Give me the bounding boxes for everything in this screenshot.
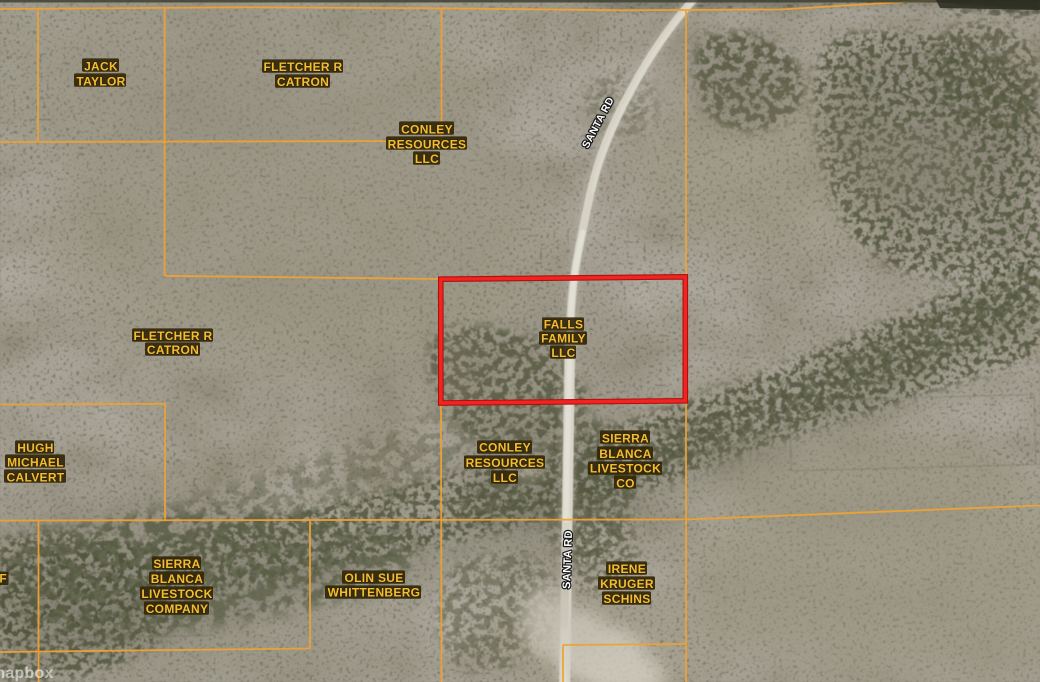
svg-text:TAYLOR: TAYLOR — [76, 74, 125, 88]
svg-text:LLC: LLC — [551, 346, 575, 360]
svg-text:LIVESTOCK: LIVESTOCK — [141, 587, 212, 601]
svg-text:HUGH: HUGH — [17, 441, 54, 455]
svg-text:IRENE: IRENE — [608, 562, 646, 576]
svg-text:SCHINS: SCHINS — [603, 592, 650, 606]
svg-text:BLANCA: BLANCA — [599, 447, 651, 461]
svg-text:CATRON: CATRON — [147, 343, 199, 357]
svg-text:F: F — [0, 571, 7, 585]
svg-text:MICHAEL: MICHAEL — [7, 455, 64, 469]
svg-text:CONLEY: CONLEY — [479, 441, 531, 455]
svg-text:FLETCHER R: FLETCHER R — [264, 60, 343, 74]
svg-text:JACK: JACK — [84, 59, 118, 73]
svg-text:KRUGER: KRUGER — [600, 577, 654, 591]
svg-text:BLANCA: BLANCA — [151, 572, 203, 586]
svg-text:RESOURCES: RESOURCES — [388, 137, 467, 151]
svg-text:RESOURCES: RESOURCES — [466, 456, 545, 470]
svg-text:LIVESTOCK: LIVESTOCK — [590, 462, 661, 476]
svg-text:OLIN SUE: OLIN SUE — [344, 571, 403, 585]
svg-text:mapbox: mapbox — [0, 665, 54, 682]
svg-text:CALVERT: CALVERT — [7, 470, 65, 484]
svg-text:CO: CO — [616, 476, 635, 490]
svg-text:FLETCHER R: FLETCHER R — [134, 329, 213, 343]
svg-text:FAMILY: FAMILY — [541, 332, 586, 346]
svg-text:LLC: LLC — [415, 152, 439, 166]
svg-text:LLC: LLC — [493, 471, 517, 485]
svg-text:COMPANY: COMPANY — [146, 602, 209, 616]
svg-text:CATRON: CATRON — [277, 75, 329, 89]
svg-text:CONLEY: CONLEY — [401, 122, 453, 136]
svg-text:SANTA RD: SANTA RD — [561, 530, 575, 589]
svg-text:SIERRA: SIERRA — [602, 431, 649, 445]
svg-text:WHITTENBERG: WHITTENBERG — [328, 586, 421, 600]
svg-text:FALLS: FALLS — [544, 318, 584, 332]
svg-text:SIERRA: SIERRA — [153, 557, 200, 571]
